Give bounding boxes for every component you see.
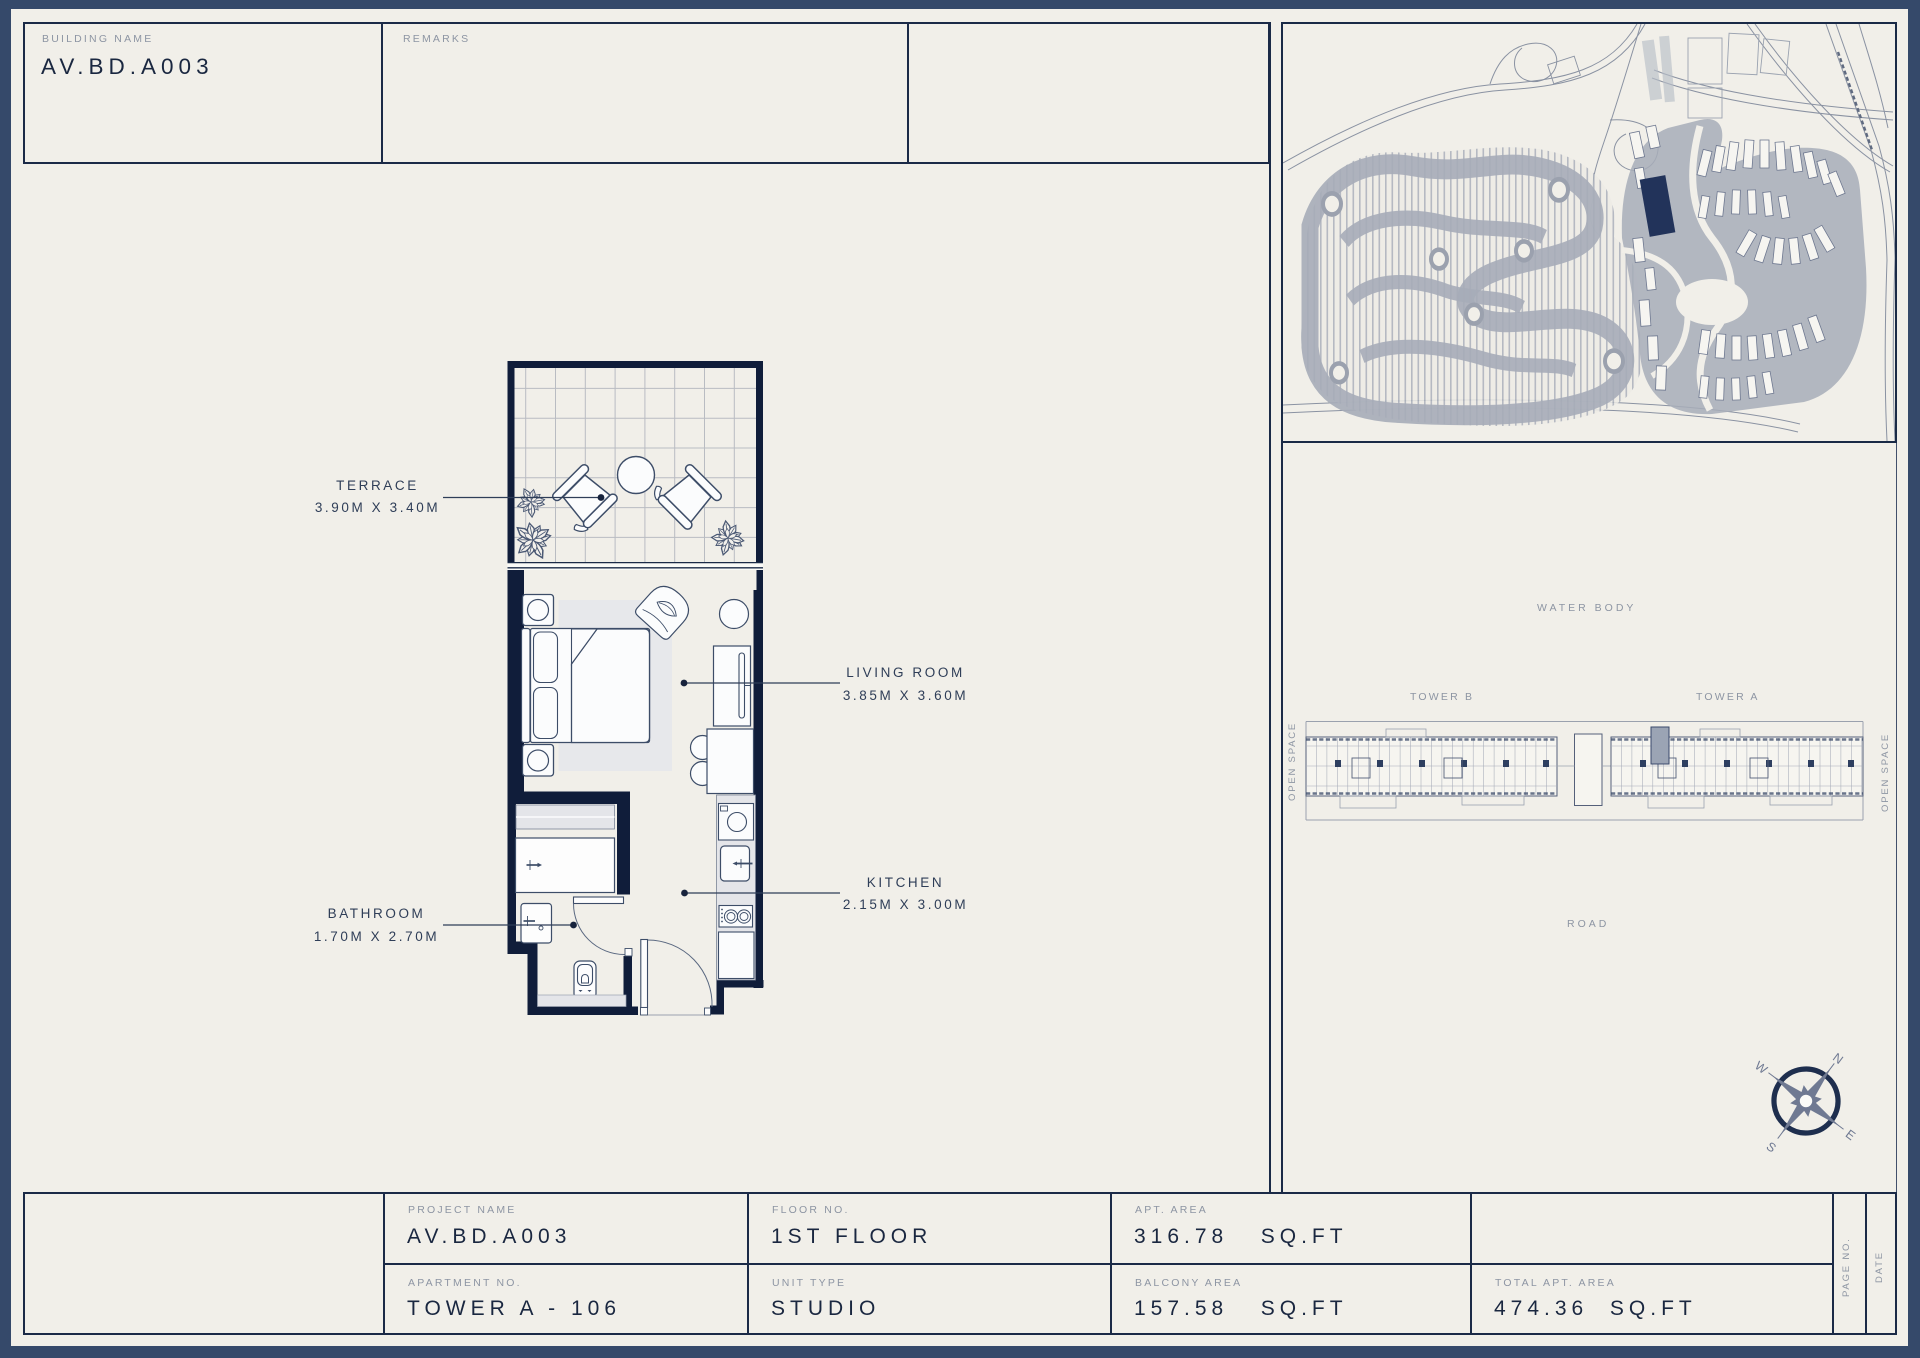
svg-text:W: W (1752, 1059, 1770, 1077)
svg-text:S: S (1764, 1139, 1779, 1155)
svg-text:N: N (1830, 1050, 1846, 1067)
svg-text:E: E (1843, 1127, 1858, 1143)
